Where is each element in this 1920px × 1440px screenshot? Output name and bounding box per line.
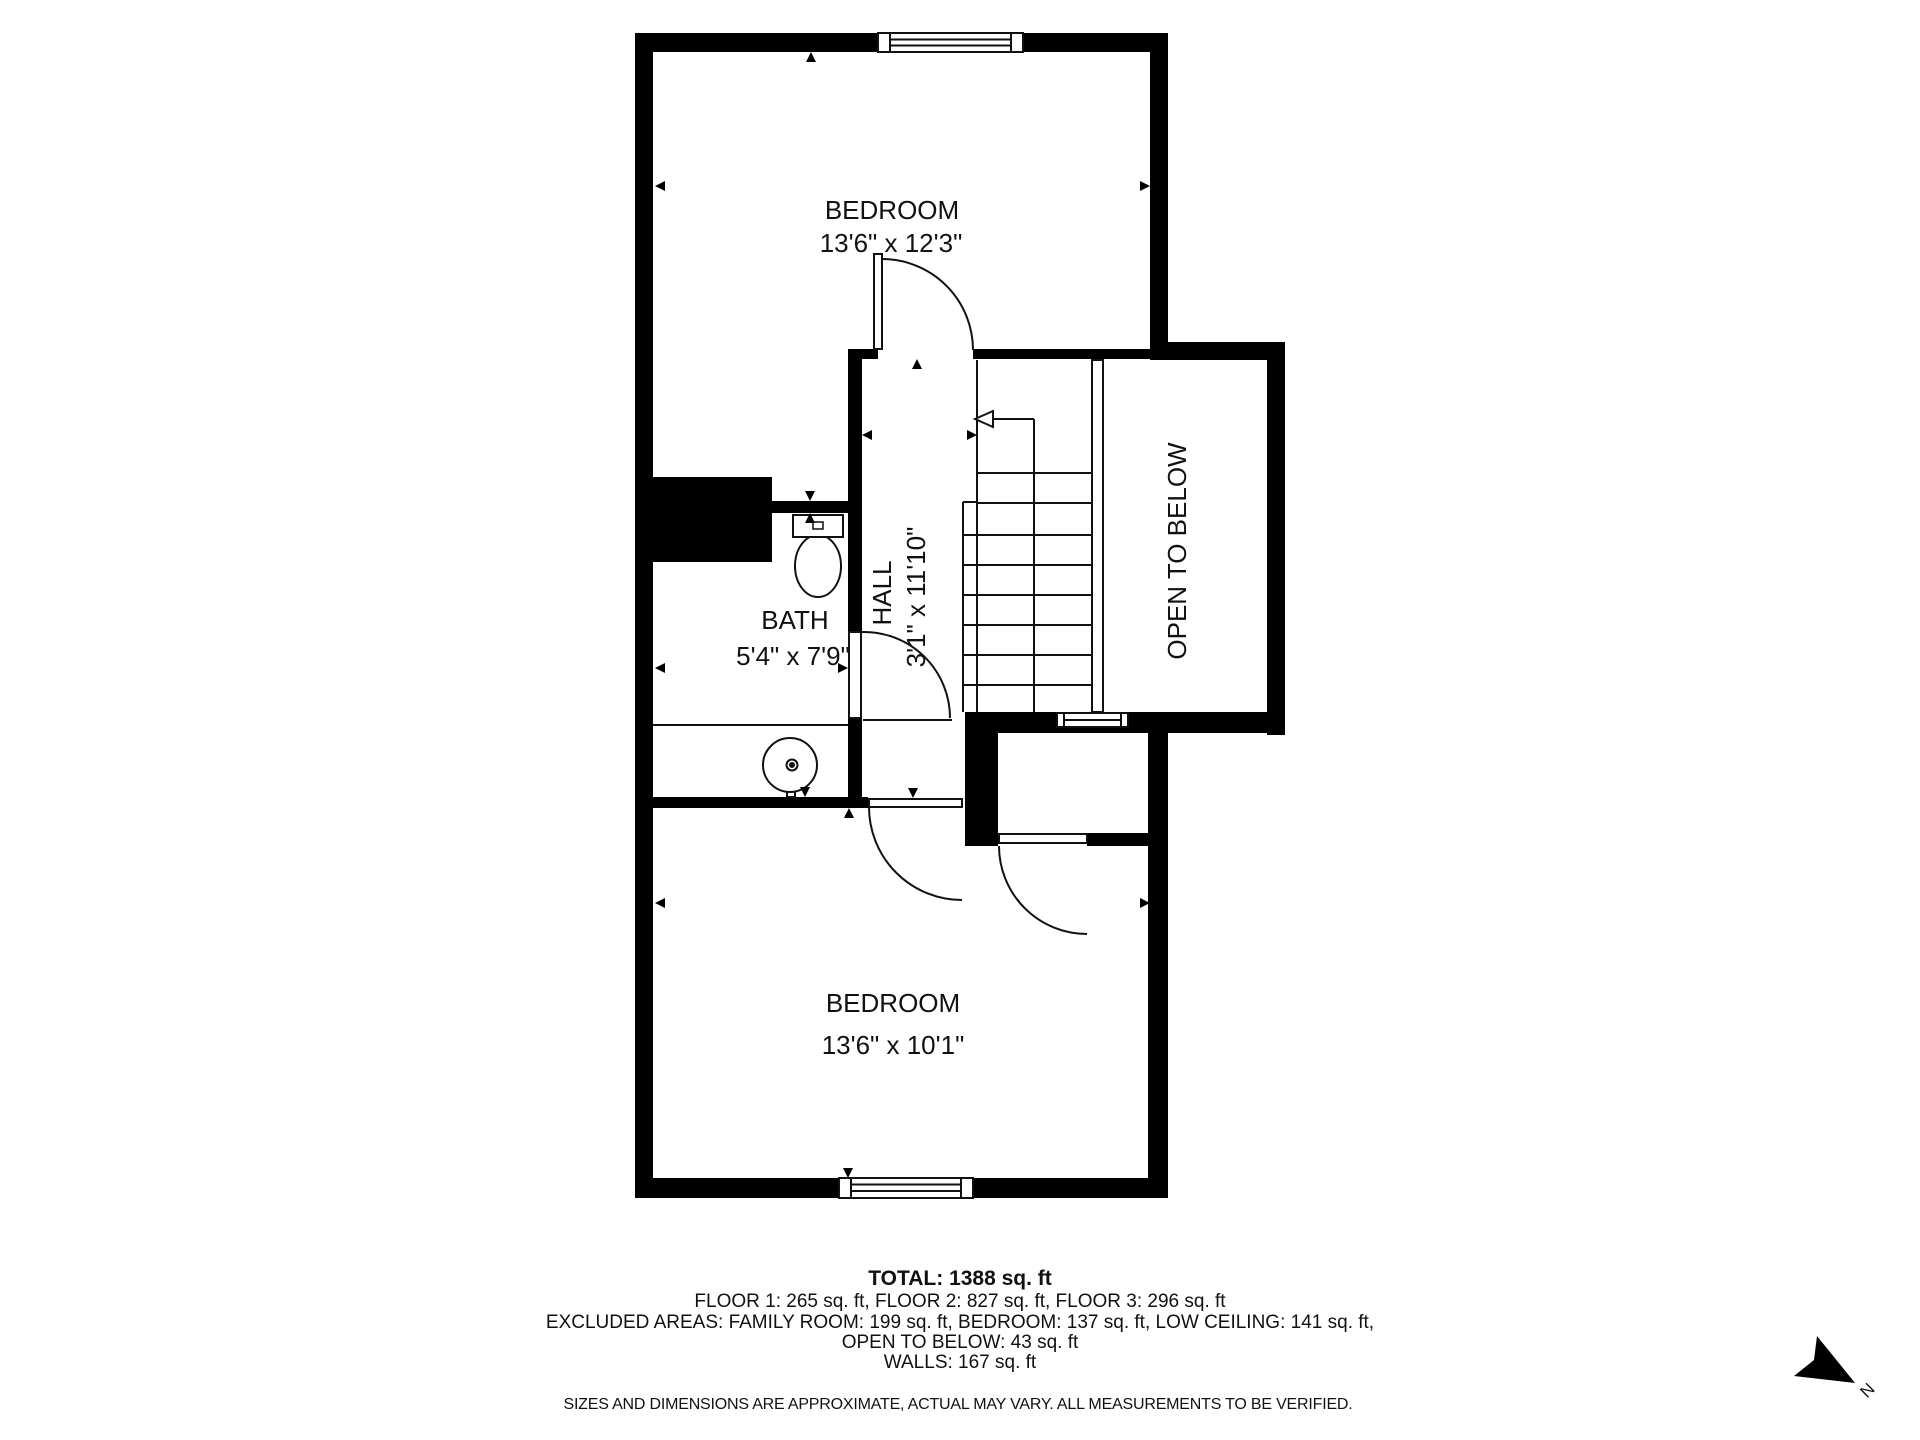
opening-bedroom-top-door bbox=[878, 349, 973, 359]
wall-right-upper bbox=[1150, 33, 1168, 360]
wall-hall-left bbox=[848, 349, 862, 797]
wall-bedroom2-top bbox=[635, 797, 870, 808]
wall-right-lower bbox=[1148, 712, 1168, 1198]
room-label-bath: BATH bbox=[761, 605, 828, 635]
footer-excluded: EXCLUDED AREAS: FAMILY ROOM: 199 sq. ft,… bbox=[546, 1312, 1374, 1333]
wall-left bbox=[635, 33, 653, 1198]
door-leaf bbox=[849, 632, 861, 718]
page-background bbox=[0, 0, 1920, 1440]
stair-railing bbox=[1092, 360, 1103, 712]
room-dims-bedroom-top: 13'6" x 12'3" bbox=[820, 228, 963, 258]
room-label-open-to-below: OPEN TO BELOW bbox=[1162, 442, 1192, 660]
window-bottom-icon bbox=[839, 1178, 973, 1198]
toilet-icon bbox=[793, 515, 843, 597]
window-stair-icon bbox=[1057, 713, 1128, 727]
floor-plan-canvas: BEDROOM 13'6" x 12'3" BATH 5'4" x 7'9" H… bbox=[0, 0, 1920, 1440]
floor-plan-page: BEDROOM 13'6" x 12'3" BATH 5'4" x 7'9" H… bbox=[0, 0, 1920, 1440]
footer-disclaimer: SIZES AND DIMENSIONS ARE APPROXIMATE, AC… bbox=[563, 1396, 1352, 1413]
room-dims-bedroom-bottom: 13'6" x 10'1" bbox=[822, 1030, 965, 1060]
door-leaf bbox=[869, 799, 962, 807]
footer-total: TOTAL: 1388 sq. ft bbox=[868, 1267, 1052, 1290]
room-dims-bath: 5'4" x 7'9" bbox=[736, 641, 850, 671]
door-leaf bbox=[999, 834, 1087, 843]
room-label-bedroom-bottom: BEDROOM bbox=[826, 988, 960, 1018]
footer-floors: FLOOR 1: 265 sq. ft, FLOOR 2: 827 sq. ft… bbox=[694, 1291, 1226, 1312]
footer-open-below: OPEN TO BELOW: 43 sq. ft bbox=[842, 1332, 1079, 1353]
room-dims-hall: 3'1" x 11'10" bbox=[901, 527, 931, 668]
room-label-bedroom-top: BEDROOM bbox=[825, 195, 959, 225]
wall-alcove-left bbox=[965, 712, 998, 835]
room-label-hall: HALL bbox=[867, 560, 897, 625]
door-leaf bbox=[874, 254, 882, 349]
footer-walls: WALLS: 167 sq. ft bbox=[884, 1352, 1037, 1373]
wall-open-below-right bbox=[1267, 342, 1285, 735]
wall-bath-top bbox=[772, 501, 848, 513]
wall-block-closet bbox=[635, 477, 772, 562]
window-top-icon bbox=[878, 33, 1023, 52]
